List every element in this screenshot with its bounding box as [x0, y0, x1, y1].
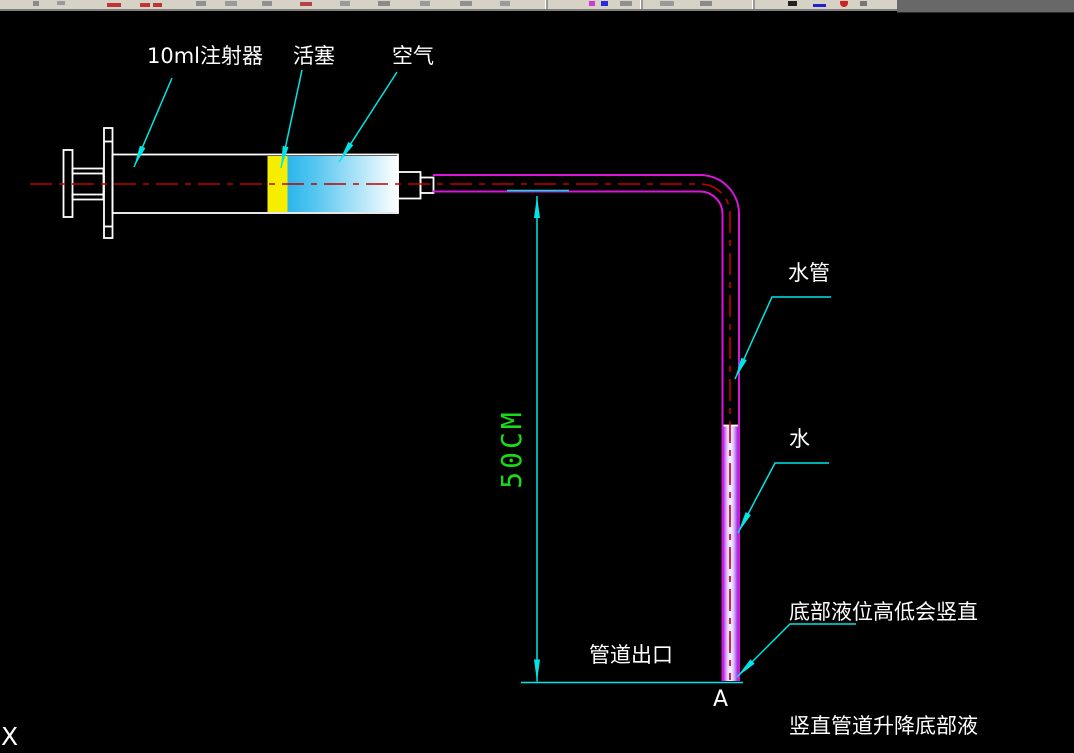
outlet-note-line: 管道出口 [589, 636, 673, 674]
water-tube-walls [433, 175, 739, 681]
tube-inner-wall [433, 192, 723, 682]
outlet-note: 管道出口 A，裸露 在大气中 [589, 560, 673, 753]
toolbar-icon-fragment [140, 3, 150, 7]
toolbar-icon-fragment [340, 1, 350, 6]
level-note: 底部液位高低会竖直 竖直管道升降底部液 位高低变换。20cm以 为变化明显，如果… [789, 517, 995, 753]
leader-water-pipe [735, 297, 831, 379]
toolbar-right-filler [897, 0, 1074, 13]
syringe-outline [64, 128, 739, 426]
dimension-text-50cm: 50CM [495, 389, 527, 509]
plunger-rod-top [73, 169, 104, 174]
cad-canvas[interactable]: 10ml注射器 活塞 空气 水管 水 50CM 管道出口 A，裸露 在大气中 底… [0, 0, 1074, 753]
toolbar-icon-fragment [57, 1, 65, 5]
leader-air [339, 72, 397, 162]
tube-outer-wall [433, 175, 739, 681]
toolbar-icon-fragment [620, 1, 632, 6]
toolbar-icon-fragment [107, 3, 121, 7]
toolbar-icon-fragment [33, 1, 39, 6]
label-water-pipe: 水管 [788, 261, 830, 285]
axis-x-marker: X [1, 722, 18, 751]
level-note-line: 竖直管道升降底部液 [789, 707, 995, 745]
toolbar-separator [640, 0, 643, 9]
toolbar-icon-fragment [700, 1, 712, 6]
toolbar-icon-fragment [153, 3, 162, 7]
toolbar-icon-fragment [225, 1, 237, 6]
label-piston: 活塞 [293, 44, 335, 68]
toolbar-icon-fragment [813, 4, 826, 7]
label-outlet-a: A [713, 687, 728, 712]
toolbar-icon-fragment [788, 1, 797, 6]
plunger-rod-bottom [73, 195, 104, 200]
level-note-line: 底部液位高低会竖直 [789, 593, 995, 631]
syringe-nozzle [398, 172, 421, 199]
label-air: 空气 [392, 44, 434, 68]
toolbar-icon-fragment [196, 1, 206, 6]
leader-lines [134, 70, 856, 677]
toolbar-icon-fragment [420, 1, 430, 6]
toolbar-icon-fragment [589, 1, 595, 6]
toolbar-icon-fragment [860, 1, 867, 6]
label-syringe: 10ml注射器 [147, 44, 263, 68]
leader-piston [281, 70, 302, 168]
toolbar-icon-fragment [660, 1, 674, 6]
toolbar-icon-fragment [840, 1, 848, 7]
toolbar-panel[interactable] [0, 0, 897, 11]
toolbar-separator [752, 0, 755, 9]
top-toolbar[interactable] [0, 0, 1074, 13]
syringe-tip [421, 178, 434, 194]
barrel-flange [104, 128, 113, 238]
toolbar-icon-fragment [378, 1, 390, 6]
label-water: 水 [789, 427, 810, 451]
application-window: 10ml注射器 活塞 空气 水管 水 50CM 管道出口 A，裸露 在大气中 底… [0, 0, 1074, 753]
toolbar-icon-fragment [500, 1, 510, 6]
toolbar-icon-fragment [262, 1, 272, 6]
toolbar-icon-fragment [460, 1, 472, 6]
toolbar-icon-fragment [300, 2, 312, 6]
toolbar-separator [545, 0, 548, 9]
toolbar-icon-fragment [601, 1, 608, 6]
